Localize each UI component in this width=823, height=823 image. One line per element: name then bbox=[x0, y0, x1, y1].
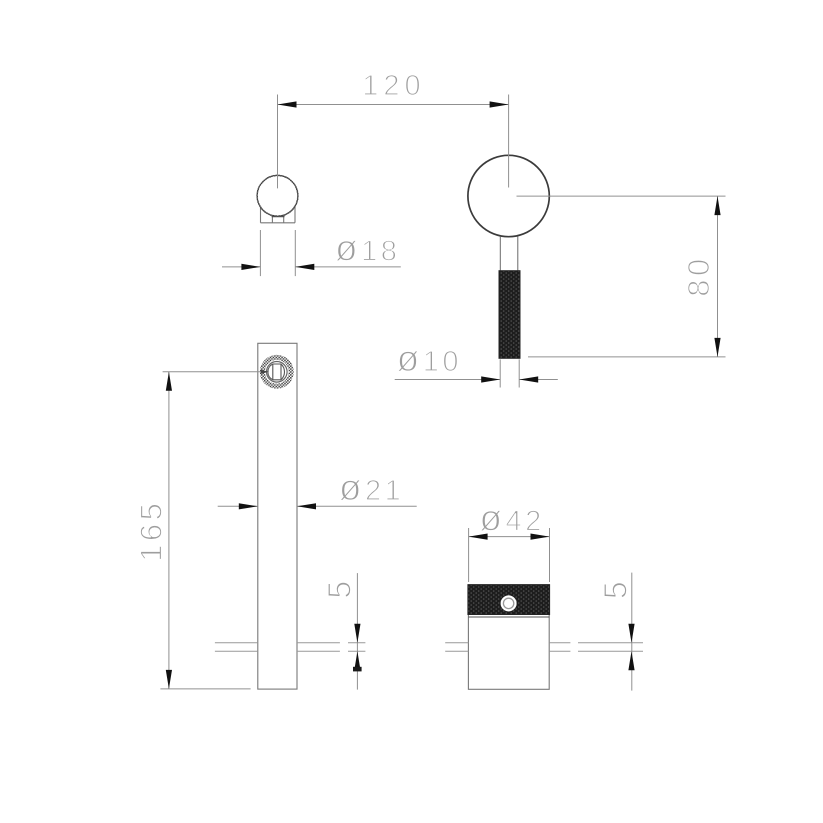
svg-text:5: 5 bbox=[322, 577, 358, 598]
svg-text:165: 165 bbox=[134, 500, 169, 562]
svg-text:5: 5 bbox=[598, 578, 634, 599]
svg-text:80: 80 bbox=[681, 255, 716, 296]
svg-text:120: 120 bbox=[362, 70, 425, 102]
